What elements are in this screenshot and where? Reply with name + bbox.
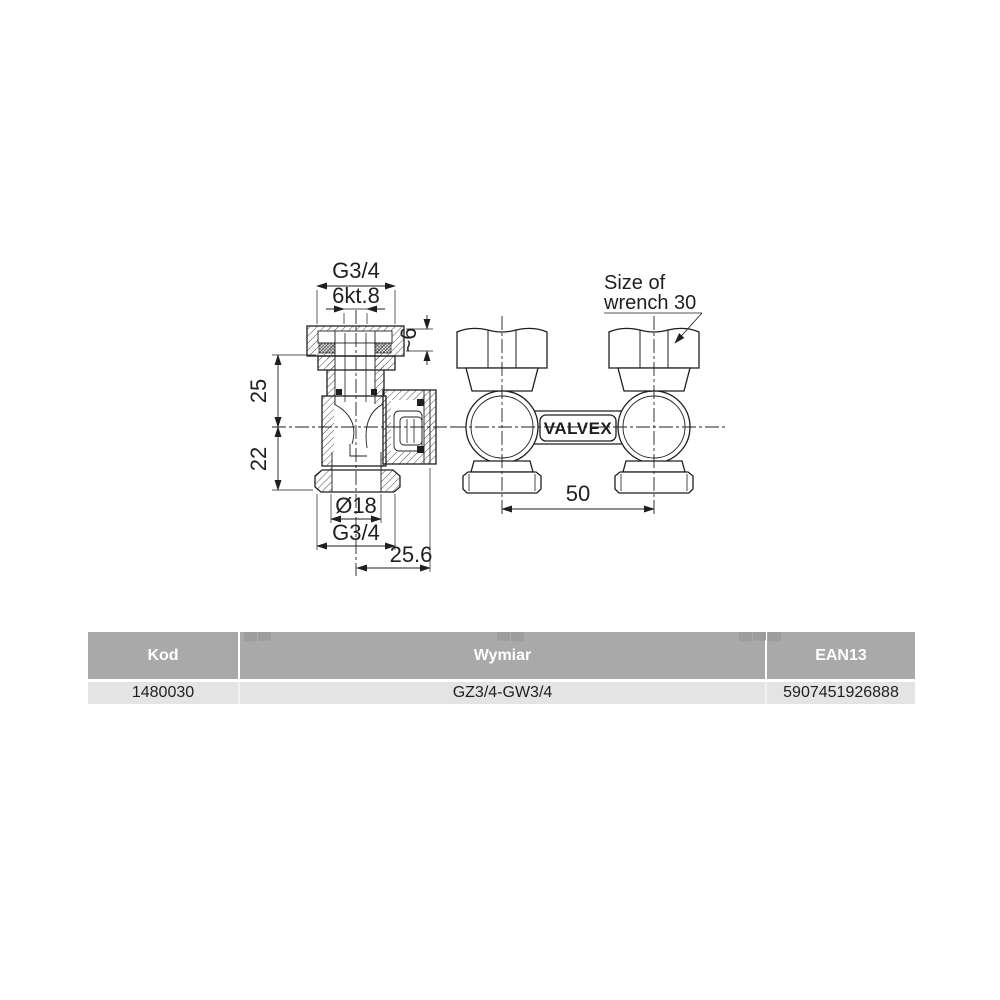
front-view: VALVEX bbox=[457, 328, 699, 493]
dim-g34-top-label: G3/4 bbox=[332, 258, 380, 283]
wrench-note-line1: Size of bbox=[604, 272, 666, 294]
seal-square bbox=[336, 389, 342, 395]
wrench-note-line2: wrench 30 bbox=[603, 292, 696, 314]
table-row: 1480030 GZ3/4-GW3/4 5907451926888 bbox=[88, 682, 915, 704]
oring-square bbox=[417, 399, 424, 406]
seal-square bbox=[371, 389, 377, 395]
header-tab-artifact bbox=[244, 632, 257, 641]
header-tab-artifact bbox=[768, 632, 781, 641]
dim-256-label: 25.6 bbox=[390, 542, 433, 567]
datasheet-page: VALVEX bbox=[0, 0, 1000, 1000]
column-header-ean13: EAN13 bbox=[765, 632, 915, 679]
header-tab-artifact bbox=[258, 632, 271, 641]
dim-50-label: 50 bbox=[566, 481, 590, 506]
dim-22-label: 22 bbox=[246, 447, 271, 471]
cell-ean13: 5907451926888 bbox=[765, 682, 915, 704]
dim-approx6-label: ~6 bbox=[396, 327, 421, 352]
dim-25-label: 25 bbox=[246, 379, 271, 403]
gasket-left bbox=[319, 343, 335, 353]
dim-hex-label: 6kt.8 bbox=[332, 283, 380, 308]
brand-label: VALVEX bbox=[544, 419, 613, 438]
header-tab-artifact bbox=[753, 632, 766, 641]
cell-kod: 1480030 bbox=[88, 682, 238, 704]
column-header-kod: Kod bbox=[88, 632, 238, 679]
spec-table: Kod Wymiar EAN13 1480030 GZ3/4-GW3/4 590… bbox=[88, 632, 915, 704]
dim-g34-bottom-label: G3/4 bbox=[332, 520, 380, 545]
valve-technical-drawing: VALVEX bbox=[0, 0, 1000, 1000]
cell-wymiar: GZ3/4-GW3/4 bbox=[238, 682, 765, 704]
header-tab-artifact bbox=[739, 632, 752, 641]
dim-dia18-label: Ø18 bbox=[335, 493, 377, 518]
gasket-right bbox=[375, 343, 391, 353]
header-tab-artifact bbox=[511, 632, 524, 641]
header-tab-artifact bbox=[497, 632, 510, 641]
